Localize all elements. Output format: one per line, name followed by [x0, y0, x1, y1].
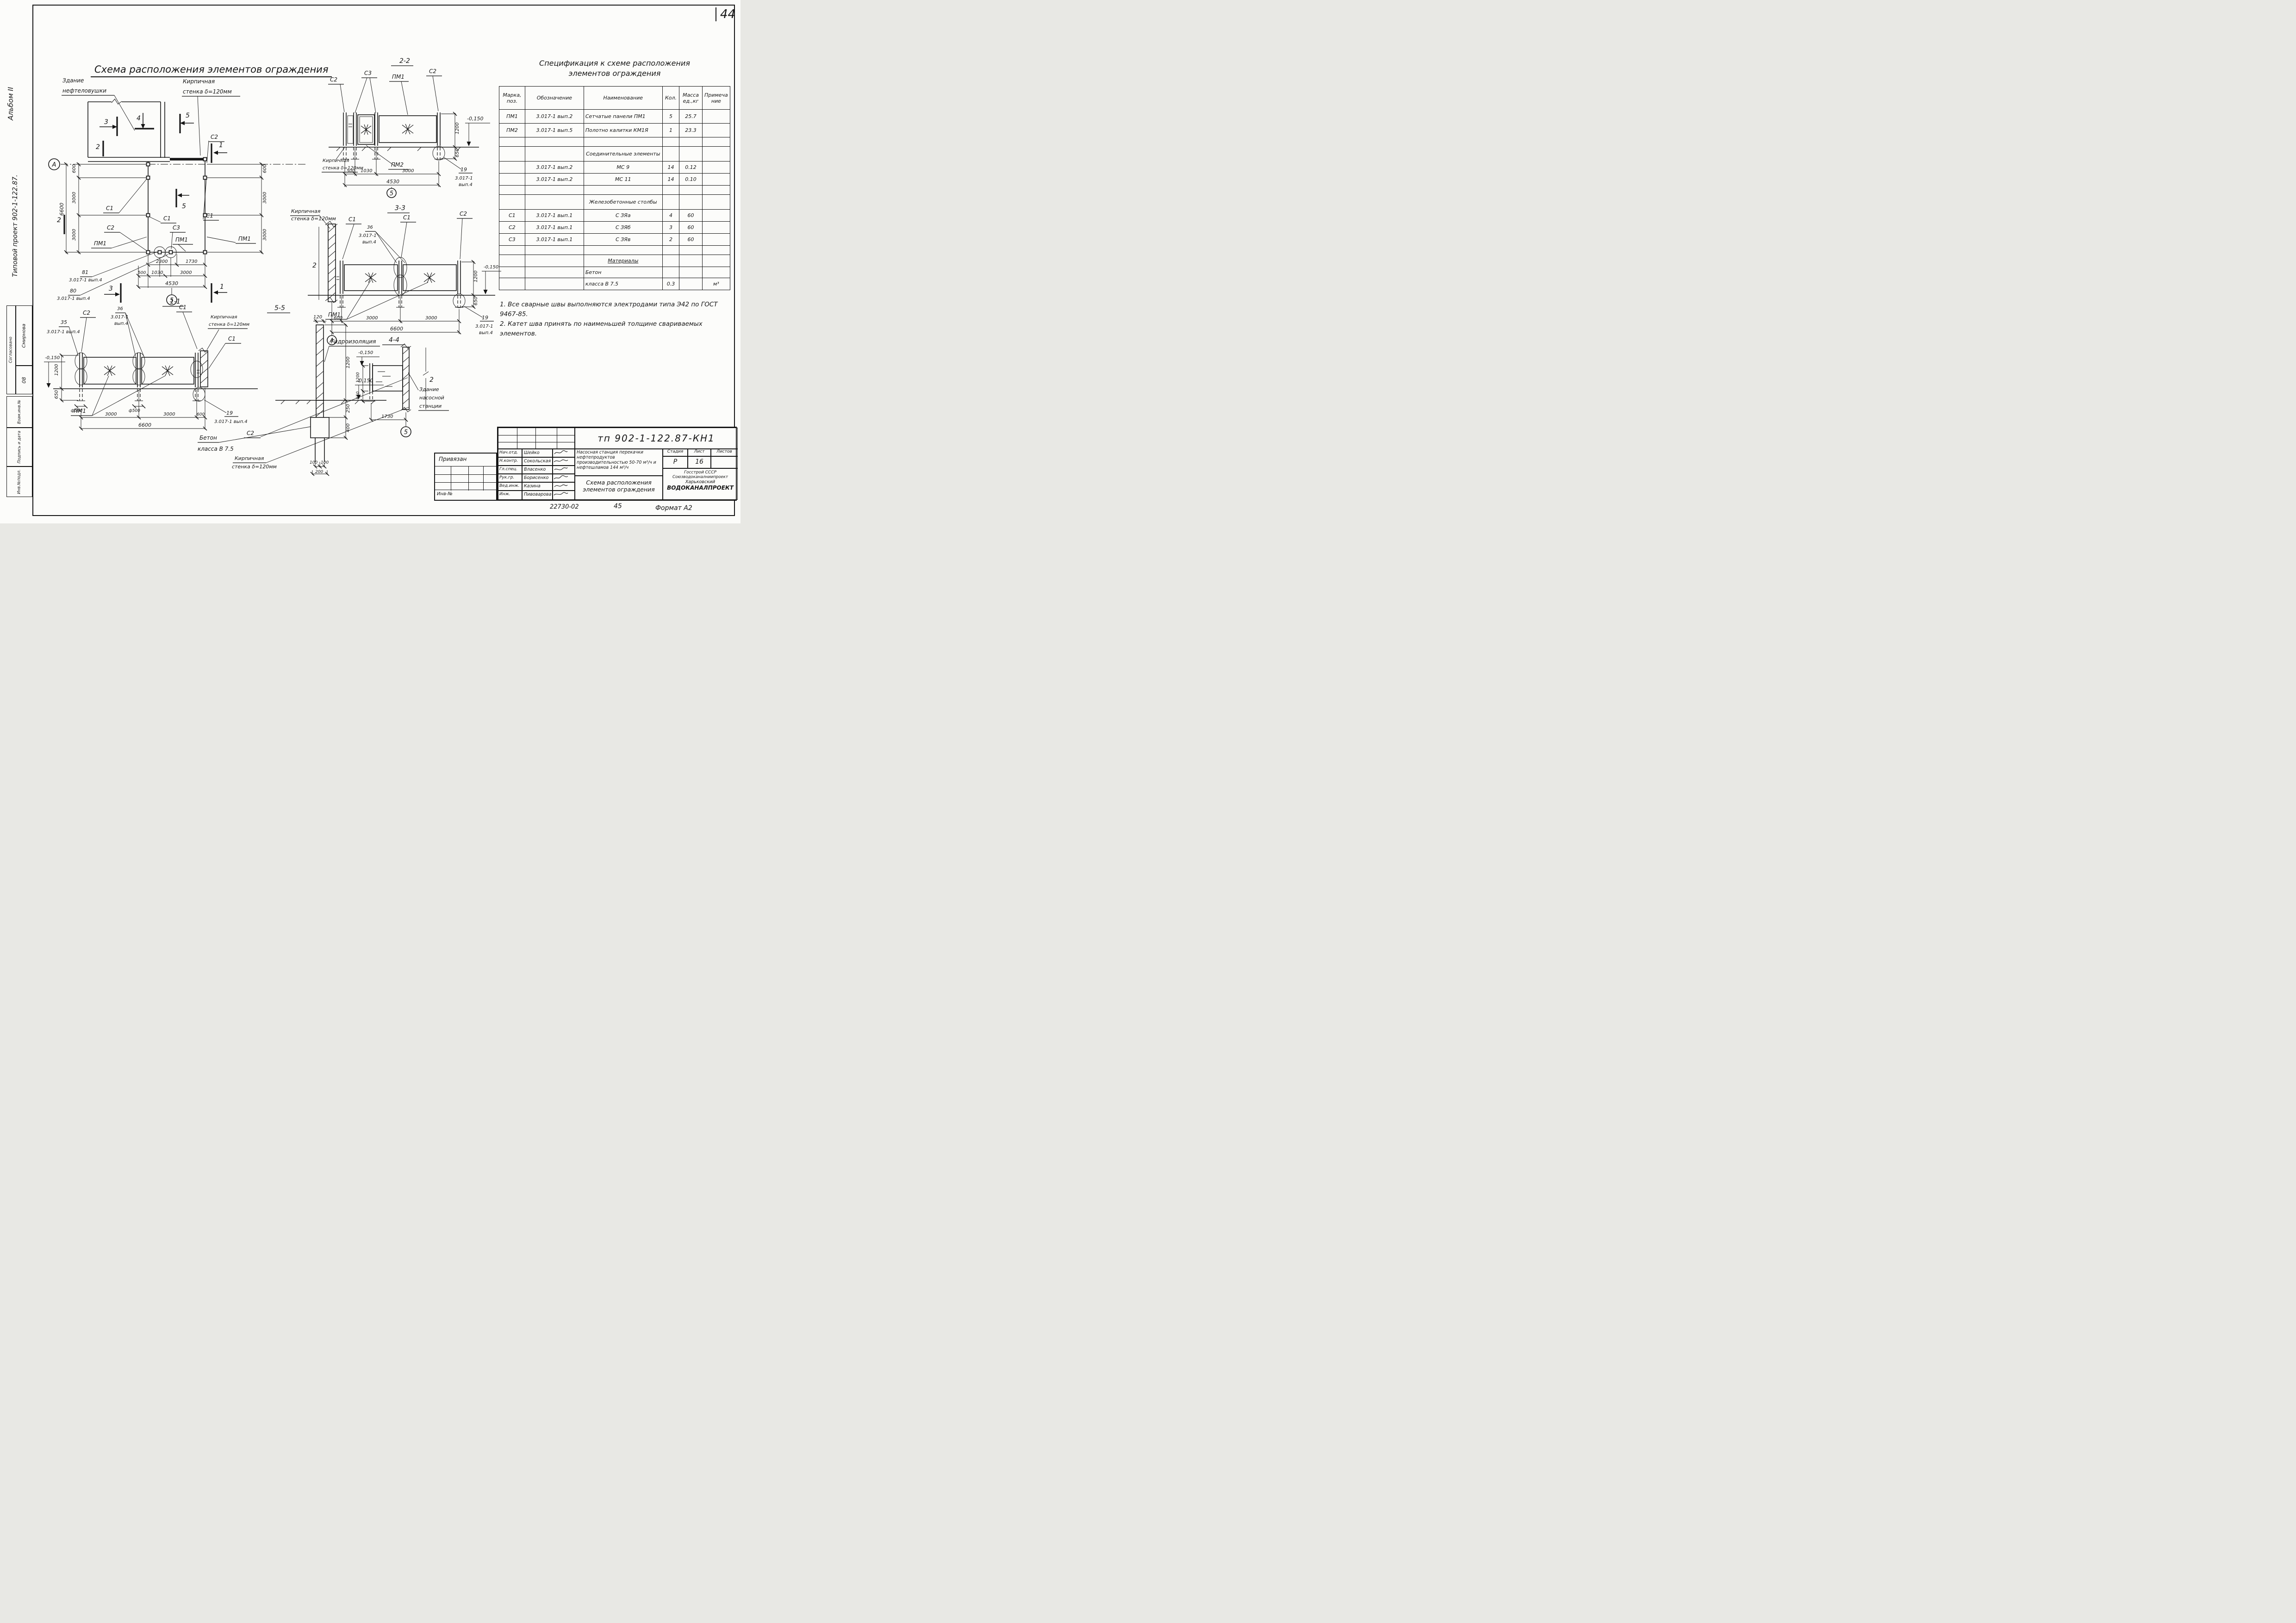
page-number: 44 [716, 7, 735, 21]
tb-name-0: Шейко [522, 449, 553, 457]
tb-sig-3 [553, 474, 575, 482]
ref35-doc-s11: 3.017-1 вып.4 [47, 330, 80, 335]
dim-4530-plan: 4530 [165, 280, 178, 286]
dims-1-1: 1200 650 -0,150 ф500 ф500 3000 3000 600 … [44, 354, 207, 430]
spec-row: ПМ23.017-1 вып.5Полотно калитки КМ1Я123.… [499, 124, 730, 137]
cell [499, 246, 525, 255]
spec-row [499, 246, 730, 255]
cell [702, 147, 730, 162]
dim-1030-plan: 1030 [151, 270, 163, 275]
cell: Бетон [584, 267, 662, 278]
c1b-s33: С1 [403, 214, 411, 221]
note-2: 2. Катет шва принять по наименьшей толщи… [500, 319, 731, 339]
section-mark-4: 4 [137, 115, 141, 122]
dim-650-s22: 650 [455, 149, 460, 157]
brick-label-2: стенка δ=120мм [183, 88, 232, 95]
ref19-vyp-s22: вып.4 [459, 182, 473, 187]
cell [662, 137, 679, 147]
cell [679, 278, 702, 290]
tb-sheet-title: Схема расположения элементов ограждения [575, 476, 663, 500]
c3-s22: С3 [364, 70, 372, 76]
cell [499, 137, 525, 147]
dim-6600-s11: 6600 [138, 422, 151, 428]
spec-table: Марка, поз. Обозначение Наименование Кол… [499, 86, 730, 290]
tb-name-2: Власенко [522, 466, 553, 474]
dim-1200-s11: 1200 [54, 364, 59, 376]
tb-name-4: Казина [522, 482, 553, 491]
cell: 14 [662, 162, 679, 174]
cell: 3.017-1 вып.1 [525, 222, 584, 234]
panel-label-pm1b: ПМ1 [175, 236, 188, 243]
spec-h-designation: Обозначение [525, 87, 584, 110]
panel-label-pm1c: ПМ1 [238, 236, 251, 242]
cell: 60 [679, 210, 702, 222]
footer-code: 22730-02 [550, 504, 579, 510]
section-4-4: 4-4 2 1200 650 -0,150 1730 5 Здание насо… [356, 322, 504, 444]
ref-80: 80 [70, 288, 76, 294]
dim-250-s55: 250 [346, 404, 351, 413]
tb-sig-1 [553, 457, 575, 466]
cell: 5 [662, 110, 679, 124]
cell [702, 186, 730, 195]
axis-a-label: А [52, 162, 56, 168]
margin-agreed-label: Согласовано [9, 336, 13, 363]
brick1-s33: Кирпичная [291, 208, 321, 214]
ref35-s11: 35 [61, 319, 67, 325]
axis-5-s44: 5 [404, 429, 408, 436]
privyazan-grid [435, 466, 496, 491]
cell: 23.3 [679, 124, 702, 137]
cell: 3 [662, 222, 679, 234]
dim-f500b: ф500 [129, 409, 140, 413]
cell [525, 267, 584, 278]
tb-org: Госстрой СССР Союзводоканалниипроект Хар… [663, 468, 738, 500]
tb-sig-2 [553, 466, 575, 474]
section-mark-3b: 3 [109, 285, 113, 292]
cell [702, 162, 730, 174]
dim-3000-l1: 3000 [72, 192, 77, 204]
dim-1200-s33: 1200 [473, 271, 479, 282]
break-mark-2-s44: 2 [429, 376, 434, 384]
privyazan-inv: Инв-№ [435, 490, 496, 500]
cell: 0.3 [662, 278, 679, 290]
pump2-label: насосной [419, 395, 444, 401]
tb-org-2: Союзводоканалниипроект [663, 475, 737, 479]
level-s33: -0,150 [484, 265, 498, 270]
cell [702, 137, 730, 147]
spec-title: Спецификация к схеме расположения элемен… [502, 58, 727, 78]
cell: 3.017-1 вып.1 [525, 234, 584, 246]
pump3-label: станции [419, 403, 442, 409]
level-s11: -0,150 [45, 355, 60, 361]
tb-change-grid [498, 428, 575, 449]
cell [525, 186, 584, 195]
dim-3000-s11a: 3000 [105, 412, 117, 417]
tb-stage-value: Р [663, 456, 688, 468]
spec-row: Бетон [499, 267, 730, 278]
cell [702, 234, 730, 246]
plan-labels: Здание нефтеловушки Кирпичная стенка δ=1… [57, 77, 256, 301]
tb-org-4: ВОДОКАНАЛПРОЕКТ [663, 485, 737, 491]
dim-650-s33: 650 [473, 297, 479, 305]
brick-label-1: Кирпичная [183, 78, 215, 85]
cell [702, 174, 730, 186]
dim-3000-r2: 3000 [262, 229, 268, 241]
spec-h-mark: Марка, поз. [499, 87, 525, 110]
cell [499, 186, 525, 195]
cell [679, 267, 702, 278]
note-1: 1. Все сварные швы выполняются электрода… [500, 300, 731, 319]
ref19-s22: 19 [460, 167, 467, 173]
cell [702, 110, 730, 124]
cell: С3 [499, 234, 525, 246]
cell [525, 147, 584, 162]
notes: 1. Все сварные швы выполняются электрода… [500, 300, 731, 339]
cell [584, 186, 662, 195]
margin-vzam-box: Взам.инв.№ [6, 396, 32, 428]
plan-dimensions: 600 3000 3000 6600 600 3000 3000 2300 17… [59, 162, 268, 305]
spec-row: 3.017-1 вып.2МС 11140.10 [499, 174, 730, 186]
tb-sig-4 [553, 482, 575, 491]
spec-row [499, 186, 730, 195]
section-mark-3: 3 [104, 118, 108, 126]
spec-row: 3.017-1 вып.2МС 9140.12 [499, 162, 730, 174]
margin-invpodl-box: Инв.№подл. [6, 466, 32, 497]
cell [499, 255, 525, 267]
tb-name-1: Сокольская [522, 457, 553, 466]
cell: МС 9 [584, 162, 662, 174]
ref-81: 81 [82, 269, 88, 275]
cell: Железобетонные столбы [584, 195, 662, 210]
margin-project: Типовой проект 902-1-122.87. [12, 159, 19, 293]
level-s22: -0,150 [467, 116, 483, 122]
dim-3000-s33b: 3000 [425, 316, 437, 321]
cell: С1 [499, 210, 525, 222]
cell [662, 186, 679, 195]
cell: 0.10 [679, 174, 702, 186]
cell [662, 195, 679, 210]
cell: класса В 7.5 [584, 278, 662, 290]
cell: 2 [662, 234, 679, 246]
cell: Соединительные элементы [584, 147, 662, 162]
cell: С ЗЯа [584, 210, 662, 222]
section-4-4-title: 4-4 [389, 336, 399, 344]
brick1-s44: Кирпичная [235, 455, 264, 461]
cell [584, 137, 662, 147]
cell [679, 137, 702, 147]
dim-500-plan: 500 [138, 271, 146, 275]
c2-left-s22: С2 [330, 76, 337, 83]
panel-s44 [373, 366, 403, 391]
tb-name-3: Борисенко [522, 474, 553, 482]
cell [679, 255, 702, 267]
section-mark-5b: 5 [182, 203, 186, 210]
cell: 4 [662, 210, 679, 222]
section-mark-2: 2 [96, 143, 100, 151]
cell [499, 147, 525, 162]
dim-2300: 2300 [156, 259, 168, 264]
dim-200-s55: 200 [315, 470, 323, 474]
pm1-s22: ПМ1 [392, 74, 404, 80]
tb-lists-value [711, 456, 738, 468]
section-5-5-title: 5-5 [274, 305, 285, 312]
section-mark-2b: 2 [57, 217, 61, 224]
margin-vzam: Взам.инв.№ [17, 400, 22, 424]
cell [525, 195, 584, 210]
cell [662, 246, 679, 255]
dim-600-r: 600 [262, 164, 268, 173]
margin-invpodl: Инв.№подл. [17, 469, 22, 494]
c2-s11: С2 [83, 310, 90, 316]
level-s44: -0,150 [358, 350, 373, 355]
tb-name-5: Пивоварова [522, 491, 553, 500]
cell: 1 [662, 124, 679, 137]
cell [525, 246, 584, 255]
margin-dept-box: 08 [16, 366, 32, 394]
tb-sheet-title-1: Схема расположения [575, 479, 662, 486]
tb-list-label: Лист [688, 449, 711, 456]
dim-100a-s55: 100 [310, 460, 317, 465]
spec-title-1: Спецификация к схеме расположения [502, 58, 727, 68]
dim-3000-l2: 3000 [72, 229, 77, 241]
cell: С ЗЯб [584, 222, 662, 234]
tb-role-2: Гл.спец. [498, 466, 522, 474]
tb-role-3: Рук.гр. [498, 474, 522, 482]
dim-3000-r1: 3000 [262, 192, 268, 204]
ref19-doc-s22: 3.017-1 [455, 176, 473, 181]
building-outline [88, 99, 170, 162]
cell [499, 174, 525, 186]
cell [702, 255, 730, 267]
brick2-s44: стенка δ=120мм [232, 464, 277, 470]
cell: Полотно калитки КМ1Я [584, 124, 662, 137]
ref36-s33: 36 [367, 225, 373, 230]
spec-row: Железобетонные столбы [499, 195, 730, 210]
cell: 25.7 [679, 110, 702, 124]
footer-format: Формат А2 [655, 504, 692, 512]
dim-650-s44: 650 [356, 392, 361, 399]
cell [525, 278, 584, 290]
title-block: Нач.отд. Шейко Н.контр. Сокольская Гл.сп… [497, 427, 737, 501]
post-label-c3: С3 [173, 224, 180, 231]
cell [499, 267, 525, 278]
tb-lists-label: Листов [711, 449, 738, 456]
beton1-label: Бетон [199, 435, 217, 441]
break-mark-2-s33: 2 [312, 262, 317, 269]
cell [662, 255, 679, 267]
cell [702, 124, 730, 137]
margin-agreed-name-box: Смирнова [16, 305, 32, 366]
margin-dept: 08 [21, 377, 27, 383]
tb-role-0: Нач.отд. [498, 449, 522, 457]
axis-5-s22: 5 [390, 190, 393, 197]
cell: Материалы [584, 255, 662, 267]
c2-s33: С2 [460, 211, 467, 217]
tb-role-1: Н.контр. [498, 457, 522, 466]
ref19-s33: 19 [482, 315, 488, 321]
dim-120-s55: 120 [313, 315, 322, 320]
cell [499, 195, 525, 210]
margin-signdate-box: Подпись и дата [6, 428, 32, 466]
dim-600-l: 600 [72, 164, 77, 173]
building-label-1: Здание [62, 77, 84, 84]
post-label-c2b: С2 [107, 224, 114, 231]
cell: 3.017-1 вып.1 [525, 210, 584, 222]
beton2-label: класса В 7.5 [198, 446, 234, 452]
spec-row [499, 137, 730, 147]
spec-h-name: Наименование [584, 87, 662, 110]
cell: м³ [702, 278, 730, 290]
cell: С2 [499, 222, 525, 234]
section-mark-1: 1 [219, 142, 223, 149]
brick2-s22: стенка δ=120мм [323, 166, 363, 171]
pm1-s11: ПМ1 [74, 408, 86, 414]
tb-project: Насосная станция перекачки нефтепродукто… [575, 449, 663, 476]
tb-stage-label: Стадия [663, 449, 688, 456]
spec-h-qty: Кол. [662, 87, 679, 110]
cell [679, 186, 702, 195]
section-2-2-title: 2-2 [399, 57, 410, 65]
footer-num: 45 [614, 503, 622, 510]
cell [679, 246, 702, 255]
margin-agreed-name: Смирнова [22, 323, 27, 348]
spec-row: Соединительные элементы [499, 147, 730, 162]
cell [702, 210, 730, 222]
ref36-vyp-s11: вып.4 [114, 321, 128, 326]
ref36-doc-s11: 3.017-1 [111, 315, 129, 320]
spec-row: класса В 7.50.3м³ [499, 278, 730, 290]
dim-650-s11: 650 [54, 390, 59, 399]
tb-role-4: Вед.инж. [498, 482, 522, 491]
spec-h-note: Примечание [702, 87, 730, 110]
cell [702, 195, 730, 210]
section-3-3-title: 3-3 [395, 205, 405, 212]
brick1-s22: Кирпичная [323, 158, 349, 163]
tb-sig-5 [553, 491, 575, 500]
margin-album: Альбом II [6, 64, 15, 143]
cell: 3.017-1 вып.2 [525, 110, 584, 124]
dim-1200-s55: 1200 [346, 357, 351, 368]
dim-3000-plan: 3000 [180, 270, 192, 275]
panel-label-pm1a: ПМ1 [94, 240, 106, 247]
cell [499, 162, 525, 174]
tb-sig-0 [553, 449, 575, 457]
brick-wall-s33 [328, 224, 336, 302]
post-label-c2: С2 [211, 134, 218, 140]
tb-org-1: Госстрой СССР [663, 470, 737, 475]
brick2-s33: стенка δ=120мм [291, 216, 336, 222]
cell [679, 195, 702, 210]
c2-s44-label: С2 [247, 430, 254, 436]
pump1-label: Здание [419, 386, 439, 392]
privyazan-box: Привязан Инв-№ [434, 453, 497, 501]
cell [584, 246, 662, 255]
cell: 14 [662, 174, 679, 186]
tb-role-5: Инж. [498, 491, 522, 500]
spec-row: ПМ13.017-1 вып.2Сетчатые панели ПМ1525.7 [499, 110, 730, 124]
dim-4530-s22: 4530 [386, 179, 399, 185]
dim-3000-s11b: 3000 [163, 412, 175, 417]
cell: 3.017-1 вып.2 [525, 174, 584, 186]
cell: ПМ1 [499, 110, 525, 124]
labels-4-4: Здание насосной станции [408, 373, 449, 410]
cell [499, 278, 525, 290]
cell: 60 [679, 222, 702, 234]
dim-6600-l: 6600 [59, 203, 65, 216]
ref-81-doc: 3.017-1 вып.4 [69, 278, 102, 283]
spec-row: С23.017-1 вып.1С ЗЯб360 [499, 222, 730, 234]
dim-1200-s22: 1200 [455, 123, 460, 134]
spec-row: С33.017-1 вып.1С ЗЯв260 [499, 234, 730, 246]
margin-agreed-box: Согласовано [6, 305, 16, 394]
dim-1730-plan: 1730 [186, 259, 197, 264]
c1a-s33: С1 [348, 216, 356, 223]
cell: 3.017-1 вып.2 [525, 162, 584, 174]
ref36-doc-s33: 3.017-1 [359, 233, 377, 238]
plan-view: А 3 4 5 2 1 5 [44, 74, 317, 308]
tb-org-3: Харьковский [663, 479, 737, 485]
cell: С ЗЯв [584, 234, 662, 246]
foundation-s55 [311, 417, 329, 438]
tb-list-value: 16 [688, 456, 711, 468]
c1a-s11: С1 [179, 304, 187, 311]
spec-header: Марка, поз. Обозначение Наименование Кол… [499, 87, 730, 110]
dim-1200-s44: 1200 [356, 372, 361, 383]
building-label-2: нефтеловушки [62, 87, 106, 94]
cell: Сетчатые панели ПМ1 [584, 110, 662, 124]
privyazan-label: Привязан [435, 454, 496, 466]
spec-row: Материалы [499, 255, 730, 267]
dim-1730-s44: 1730 [381, 414, 393, 419]
c2-right-s22: С2 [429, 68, 436, 75]
tb-doc-number: тп 902-1-122.87-КН1 [575, 428, 738, 449]
cell [525, 137, 584, 147]
post-label-c1b: С1 [163, 215, 171, 222]
cell: МС 11 [584, 174, 662, 186]
cell [702, 267, 730, 278]
labels-2-2: С2 С3 ПМ1 С2 ПМ2 Кирпичная стенка δ=120м… [322, 68, 473, 187]
tb-sheet-title-2: элементов ограждения [575, 486, 662, 493]
spec-row: С13.017-1 вып.1С ЗЯа460 [499, 210, 730, 222]
cell: ПМ2 [499, 124, 525, 137]
posts-2-2 [341, 112, 443, 159]
cell [662, 147, 679, 162]
cell [679, 147, 702, 162]
cell [662, 267, 679, 278]
cell [702, 246, 730, 255]
cell: 0.12 [679, 162, 702, 174]
section-2-2: 2-2 1200 650 -0,150 500 1030 3000 4530 [322, 55, 493, 199]
cell: 60 [679, 234, 702, 246]
spec-h-mass: Масса ед.,кг [679, 87, 702, 110]
section-mark-1b: 1 [220, 283, 224, 291]
margin-signdate: Подпись и дата [17, 431, 22, 463]
section-mark-5: 5 [186, 112, 190, 119]
cell [702, 222, 730, 234]
ref36-s11: 36 [117, 306, 123, 311]
dim-100b-s55: 100 [321, 460, 329, 465]
wall-s55 [316, 325, 324, 400]
drawing-sheet: 44 Альбом II Типовой проект 902-1-122.87… [0, 0, 740, 523]
cell: 3.017-1 вып.5 [525, 124, 584, 137]
post-label-c1c: С1 [206, 212, 213, 219]
spec-title-2: элементов ограждения [502, 68, 727, 79]
cell [525, 255, 584, 267]
post-label-c1a: С1 [106, 205, 113, 211]
ref36-vyp-s33: вып.4 [362, 240, 376, 245]
